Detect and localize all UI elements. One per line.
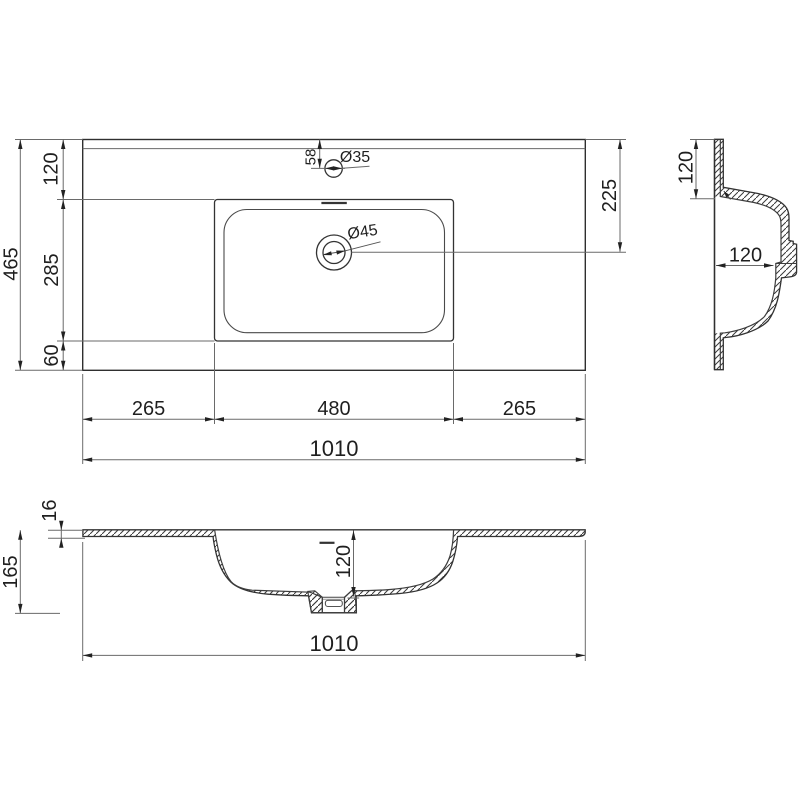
svg-text:285: 285 bbox=[41, 253, 63, 286]
svg-text:480: 480 bbox=[317, 398, 350, 420]
svg-text:60: 60 bbox=[41, 344, 63, 366]
svg-text:Ø45: Ø45 bbox=[346, 222, 379, 244]
svg-text:465: 465 bbox=[1, 247, 23, 280]
svg-text:120: 120 bbox=[41, 152, 63, 185]
svg-text:265: 265 bbox=[132, 398, 165, 420]
svg-text:120: 120 bbox=[333, 545, 355, 578]
svg-text:1010: 1010 bbox=[310, 631, 359, 656]
svg-text:120: 120 bbox=[676, 151, 698, 184]
svg-text:120: 120 bbox=[729, 245, 762, 267]
svg-text:265: 265 bbox=[503, 398, 536, 420]
svg-text:165: 165 bbox=[0, 555, 22, 588]
svg-text:Ø35: Ø35 bbox=[340, 149, 370, 166]
svg-text:1010: 1010 bbox=[310, 436, 359, 461]
svg-text:225: 225 bbox=[599, 179, 621, 212]
svg-text:58: 58 bbox=[303, 149, 320, 166]
svg-text:16: 16 bbox=[39, 499, 61, 521]
